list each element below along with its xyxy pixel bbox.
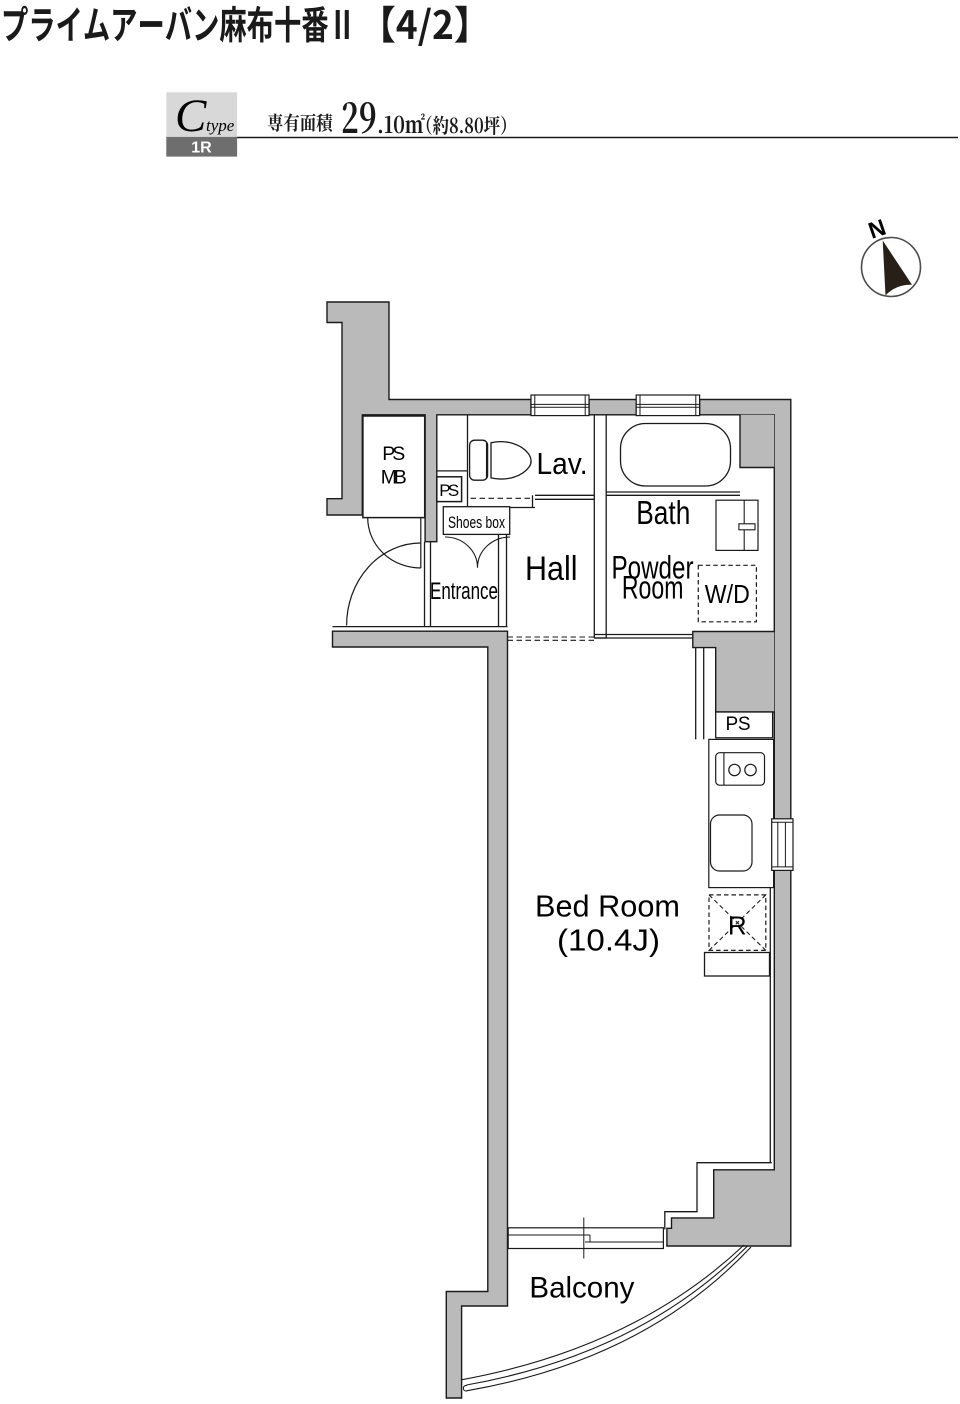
svg-text:Hall: Hall bbox=[525, 550, 578, 588]
svg-text:Balcony: Balcony bbox=[529, 1271, 634, 1304]
svg-text:PS: PS bbox=[439, 481, 459, 500]
svg-text:Bed Room: Bed Room bbox=[535, 889, 680, 924]
svg-text:R: R bbox=[728, 911, 747, 941]
svg-text:Shoes box: Shoes box bbox=[448, 514, 506, 532]
svg-text:PS: PS bbox=[382, 443, 405, 465]
svg-text:C: C bbox=[175, 90, 207, 142]
svg-text:Room: Room bbox=[622, 570, 684, 606]
svg-text:MB: MB bbox=[381, 467, 407, 489]
svg-text:W/D: W/D bbox=[705, 579, 750, 609]
svg-text:Bath: Bath bbox=[636, 494, 690, 531]
svg-text:PS: PS bbox=[726, 714, 751, 735]
svg-text:type: type bbox=[206, 116, 235, 135]
svg-text:1R: 1R bbox=[191, 140, 212, 157]
svg-text:Lav.: Lav. bbox=[537, 446, 588, 481]
svg-text:Entrance: Entrance bbox=[430, 578, 498, 605]
svg-text:(10.4J): (10.4J) bbox=[557, 923, 660, 958]
